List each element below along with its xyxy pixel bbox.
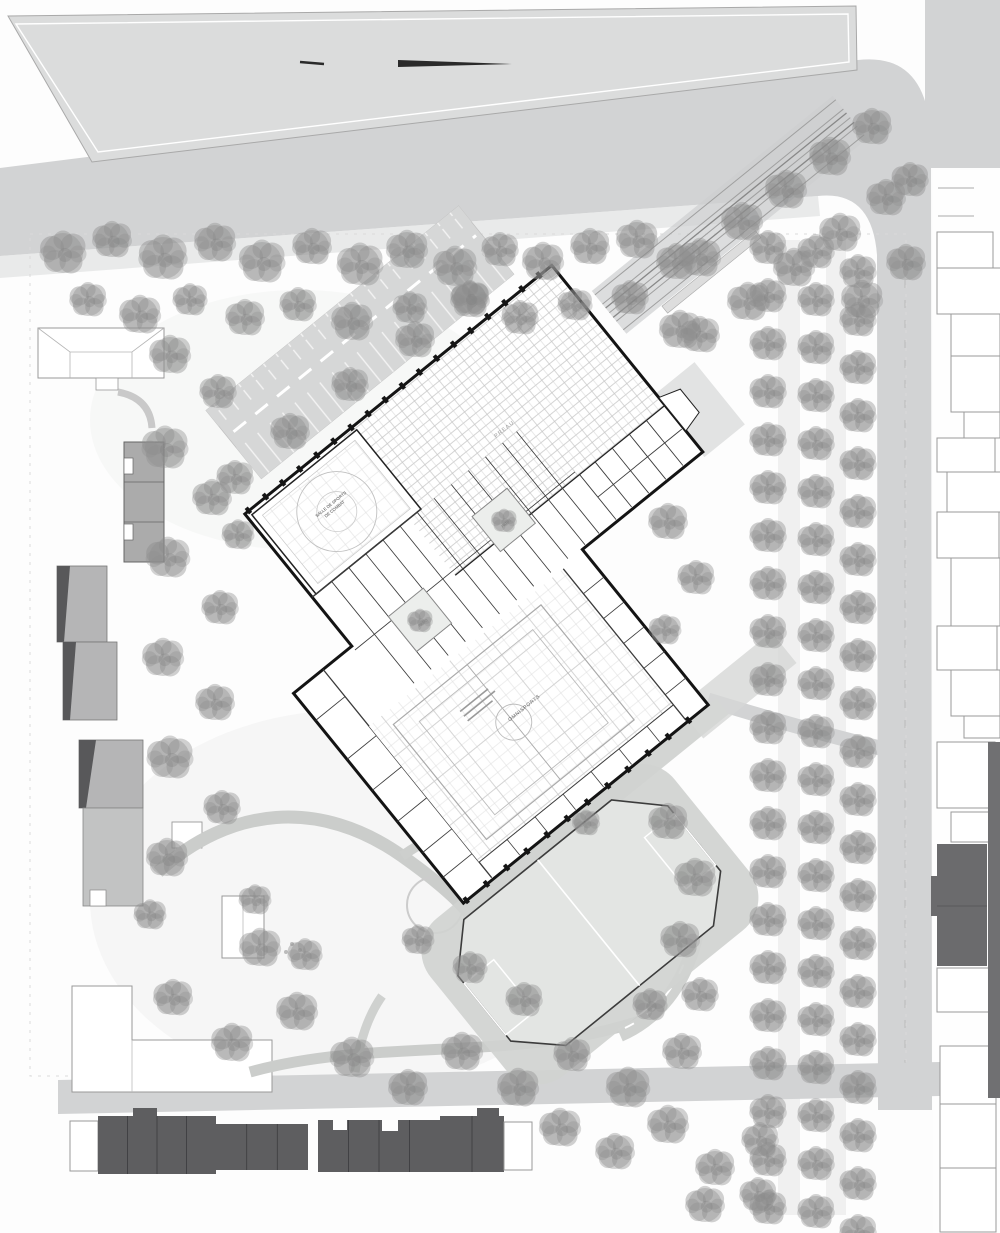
site-plan-canvas: PREAU SALLE DE SPORTS DE COMBAT <box>0 0 1000 1233</box>
row-house-outline <box>937 512 999 558</box>
row-house-outline <box>937 268 1000 314</box>
end-house-outline <box>504 1122 532 1170</box>
row-house-outline <box>937 626 997 670</box>
house-courtyard-notch <box>382 1120 398 1131</box>
row-house-outline <box>940 1046 996 1104</box>
row-house-outline <box>940 1168 996 1232</box>
row-house-outline <box>951 356 1000 412</box>
row-house-outline <box>940 1104 996 1168</box>
house-courtyard-notch <box>333 1120 347 1130</box>
row-house-outline <box>937 742 995 808</box>
row-house-outline <box>937 438 995 472</box>
row-house-outline <box>937 232 993 268</box>
row-house-outline <box>951 670 1000 716</box>
terraced-house-block <box>216 1124 308 1170</box>
row-house-outline <box>947 472 1000 512</box>
road-top-right <box>925 0 1000 168</box>
row-house-outline <box>964 412 1000 438</box>
end-house-outline <box>70 1121 98 1171</box>
site-plan-svg: PREAU SALLE DE SPORTS DE COMBAT <box>0 0 1000 1233</box>
row-house-outline <box>964 716 1000 738</box>
row-house-outline <box>951 558 1000 626</box>
row-house-outline <box>951 314 1000 356</box>
row-house-outline <box>937 968 989 1012</box>
